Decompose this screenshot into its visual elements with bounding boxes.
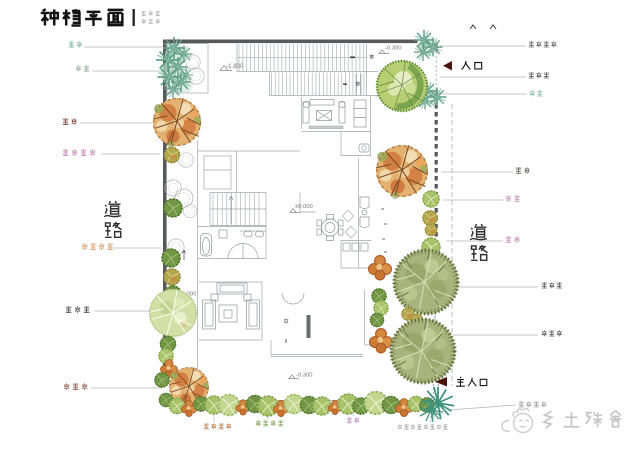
svg-text:-0.300: -0.300 [296,373,312,379]
svg-text:±0.000: ±0.000 [295,204,313,210]
svg-text:-1.800: -1.800 [226,63,244,70]
svg-text:-0.300: -0.300 [385,46,401,52]
